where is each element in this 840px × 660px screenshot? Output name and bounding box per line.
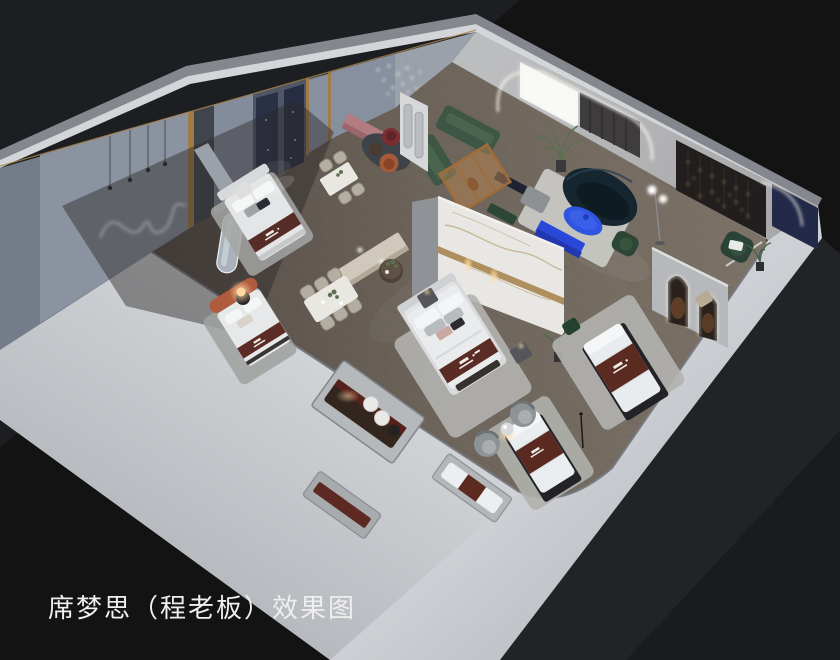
caption-title: 席梦思（程老板）效果图 — [48, 588, 356, 625]
red-pouf-seat — [386, 131, 396, 141]
rust-chair-seat — [384, 159, 395, 170]
arch-opening-1 — [668, 276, 688, 327]
black-stool — [389, 425, 400, 436]
niche-spot — [336, 389, 360, 403]
small-round-table — [370, 143, 383, 156]
sign-pole-top — [579, 412, 582, 415]
barrel-chair-2 — [474, 431, 500, 457]
rolled-mattress-2 — [375, 411, 390, 426]
console-lamp-1 — [358, 248, 363, 253]
wall-spot-1 — [463, 255, 473, 273]
wall-spot-2 — [489, 267, 499, 285]
barrel-chair-1 — [510, 401, 536, 427]
rolled-mattress-1 — [364, 397, 379, 412]
showroom-render: 席梦思（程老板）效果图 — [0, 0, 840, 660]
render-canvas — [0, 0, 840, 660]
round-side-table — [379, 259, 403, 283]
